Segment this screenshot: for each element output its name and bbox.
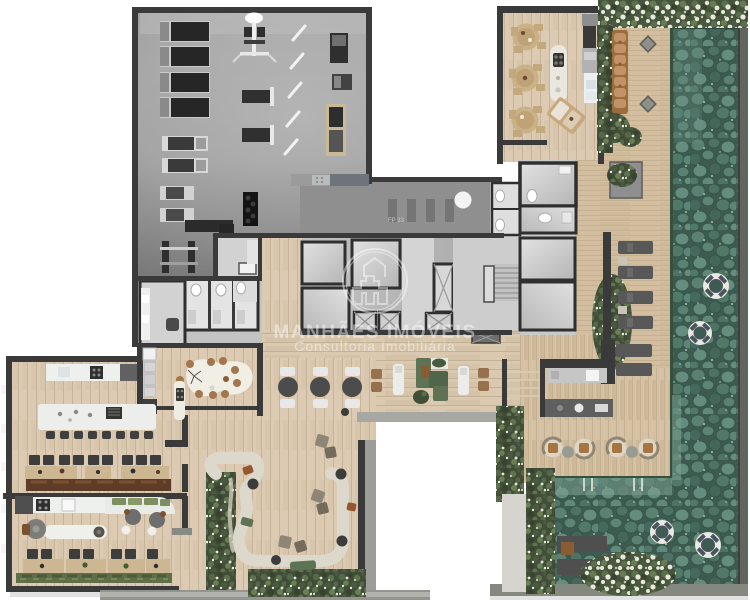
svg-text:Consultoria Imobiliária: Consultoria Imobiliária [294, 338, 456, 354]
svg-text:FP 33: FP 33 [388, 218, 405, 224]
